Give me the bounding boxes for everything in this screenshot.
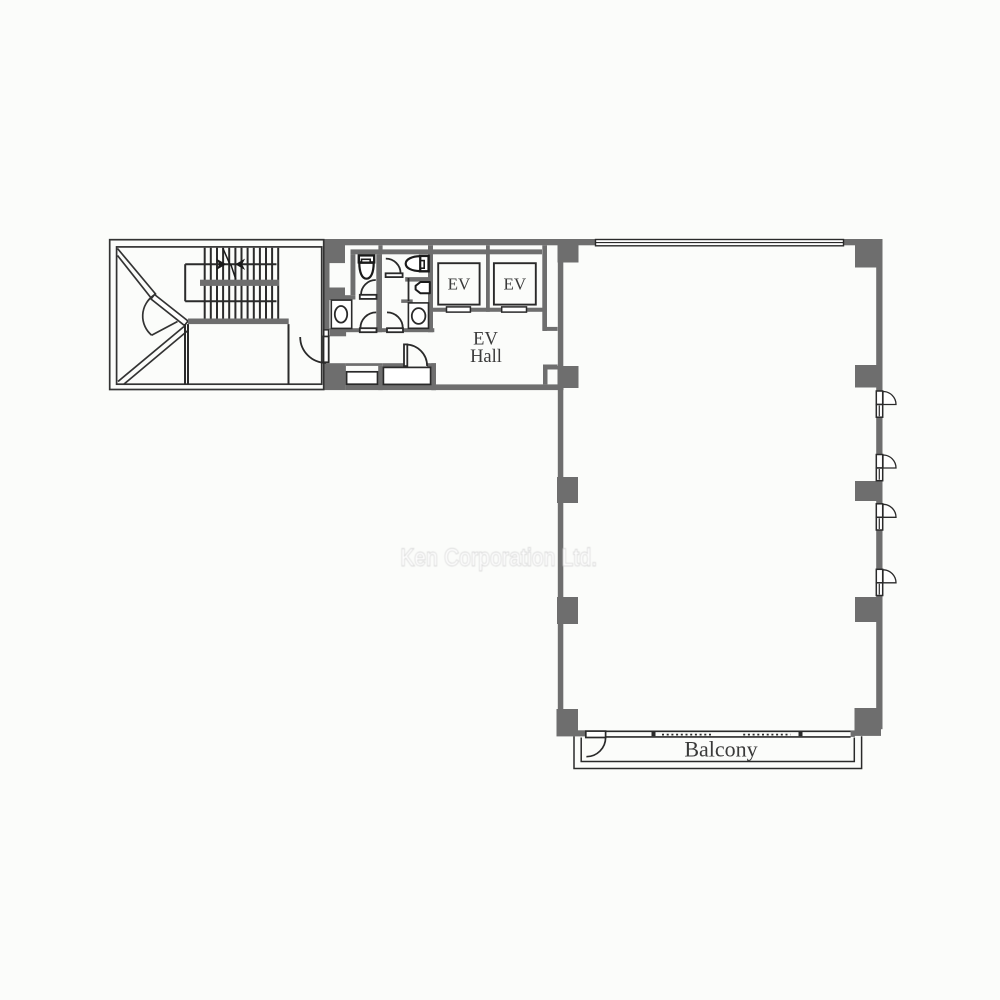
svg-text:EV: EV	[448, 274, 471, 293]
svg-text:Ken Corporation Ltd.: Ken Corporation Ltd.	[401, 545, 598, 572]
svg-text:EV: EV	[503, 274, 526, 293]
svg-text:Balcony: Balcony	[684, 737, 757, 762]
svg-text:Hall: Hall	[470, 347, 502, 367]
